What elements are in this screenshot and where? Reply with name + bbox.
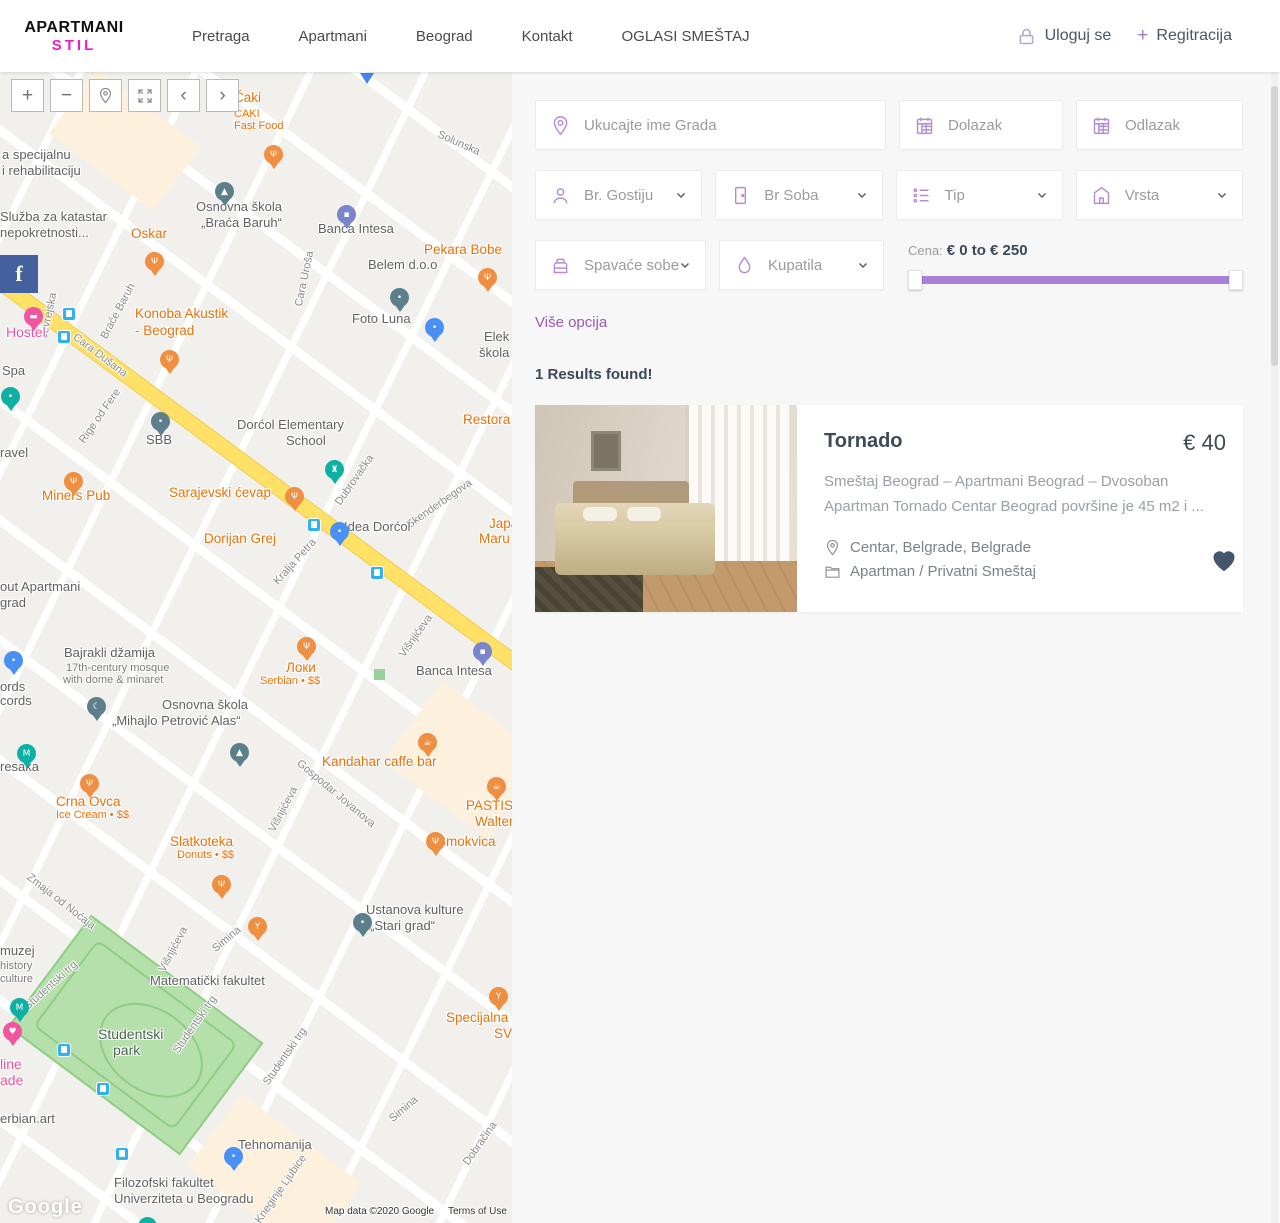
- type-select[interactable]: Tip: [896, 170, 1063, 220]
- site-logo[interactable]: APARTMANI STIL: [14, 19, 134, 54]
- pan-left-button[interactable]: ‹: [167, 79, 200, 112]
- map-label: Belem d.o.o: [368, 258, 437, 273]
- map-marker[interactable]: ♜: [325, 460, 344, 479]
- map-label: Oskar: [131, 226, 167, 242]
- photo-blanket: [555, 523, 715, 575]
- bus-stop-icon[interactable]: [115, 1147, 129, 1161]
- map-label: park: [113, 1042, 140, 1058]
- price-slider-handle-min[interactable]: [908, 270, 922, 290]
- map-label: Braće Baruh: [98, 281, 138, 341]
- map-label: Matematički fakultet: [150, 974, 265, 989]
- map-marker[interactable]: ▬: [24, 307, 43, 326]
- map-marker[interactable]: •: [4, 651, 23, 670]
- map-label: Restora: [463, 412, 510, 428]
- auth-links: Uloguj se + Regitracija: [1016, 25, 1232, 47]
- map-marker[interactable]: Ψ: [160, 350, 179, 369]
- chevron-down-icon: [675, 189, 687, 201]
- map-label: i rehabilitaciju: [2, 164, 81, 179]
- map-marker[interactable]: Ψ: [264, 145, 283, 164]
- map-label: Univerziteta u Beogradu: [114, 1192, 253, 1207]
- bus-stop-icon[interactable]: [370, 566, 384, 580]
- map-marker[interactable]: Ψ: [145, 252, 164, 271]
- pan-right-button[interactable]: ›: [206, 79, 239, 112]
- map-label: out Apartmani: [0, 580, 80, 595]
- map-label: a specijalnu: [2, 148, 71, 163]
- map-attribution: Map data ©2020 Google: [325, 1206, 434, 1218]
- map-label: Rige od Fere: [77, 387, 124, 446]
- scrollbar-thumb[interactable]: [1271, 86, 1278, 366]
- logo-line-1: APARTMANI: [14, 19, 134, 37]
- map-marker[interactable]: Ψ: [64, 472, 83, 491]
- map-label: „Stari grad“: [370, 919, 435, 934]
- map-label: Višnjićeva: [397, 612, 436, 660]
- map-marker[interactable]: •: [425, 318, 444, 337]
- map-label: Ice Cream • $$: [56, 809, 129, 822]
- map-label: Japa: [489, 516, 512, 532]
- checkout-placeholder: Odlazak: [1125, 117, 1180, 134]
- map-label: grad: [0, 596, 26, 611]
- map-label: Walter S: [475, 814, 512, 830]
- map-label: history: [0, 960, 32, 973]
- map-marker-triangle[interactable]: [360, 73, 374, 84]
- map-label: line: [0, 1056, 22, 1072]
- map-label: Dobračina: [461, 1120, 500, 1168]
- bathrooms-placeholder: Kupatila: [768, 257, 822, 274]
- map-label: Solunska: [435, 129, 481, 159]
- map-label: ravel: [0, 446, 28, 461]
- map-label: Pekara Bobe: [424, 242, 502, 258]
- photo-pillow: [627, 507, 661, 521]
- result-title[interactable]: Tornado: [824, 430, 903, 453]
- map-controls: + − ‹ ›: [11, 79, 239, 112]
- map-marker[interactable]: Ψ: [285, 487, 304, 506]
- location-pin-icon: [550, 115, 571, 136]
- price-label: Cena:: [908, 243, 943, 258]
- map-marker[interactable]: Ψ: [80, 774, 99, 793]
- map-label: Elek: [484, 330, 509, 345]
- map-label: culture: [0, 973, 33, 986]
- map-marker[interactable]: Ψ: [426, 832, 445, 851]
- map-green-area[interactable]: [374, 669, 385, 680]
- map-label: - Beograd: [135, 323, 194, 339]
- price-slider[interactable]: [908, 270, 1243, 290]
- map-label: 17th-century mosque: [66, 662, 169, 675]
- calendar-icon: [914, 115, 935, 136]
- photo-picture-frame: [591, 431, 621, 471]
- map-label: muzej: [0, 944, 35, 959]
- map-label: SV: [494, 1026, 512, 1042]
- price-value: € 0 to € 250: [947, 242, 1028, 259]
- map-label: Studentski: [98, 1026, 163, 1042]
- nav-pretraga[interactable]: Pretraga: [192, 28, 250, 45]
- guests-select[interactable]: Br. Gostiju: [535, 170, 702, 220]
- rooms-placeholder: Br Soba: [764, 187, 818, 204]
- map-label: PASTIS: [466, 798, 512, 814]
- map-label: Cara Dušana: [70, 331, 129, 380]
- building-icon: [1091, 185, 1112, 206]
- logo-line-2: STIL: [14, 37, 134, 54]
- search-panel: Ukucajte ime Grada Dolazak Odlazak Br. G…: [512, 72, 1280, 1223]
- price-filter: Cena:€ 0 to € 250: [908, 240, 1243, 290]
- map-label: Skenderbegova: [404, 477, 474, 532]
- map-label: Sarajevski ćevap: [169, 485, 271, 501]
- city-input[interactable]: Ukucajte ime Grada: [535, 100, 886, 150]
- map-marker[interactable]: •: [138, 1217, 157, 1223]
- register-link[interactable]: + Regitracija: [1137, 25, 1232, 47]
- rooms-select[interactable]: Br Soba: [715, 170, 882, 220]
- login-link[interactable]: Uloguj se: [1016, 26, 1112, 47]
- bus-stop-icon[interactable]: [57, 330, 71, 344]
- map-label: nepokretnosti...: [0, 226, 89, 241]
- folder-icon: [824, 563, 841, 580]
- main-nav: Pretraga Apartmani Beograd Kontakt OGLAS…: [192, 28, 799, 45]
- map-marker[interactable]: Ψ: [478, 268, 497, 287]
- fullscreen-button[interactable]: [128, 79, 161, 112]
- checkout-field[interactable]: Odlazak: [1076, 100, 1243, 150]
- chevron-down-icon: [679, 259, 691, 271]
- map-marker[interactable]: ♥: [3, 1022, 22, 1041]
- kind-select[interactable]: Vrsta: [1076, 170, 1243, 220]
- photo-pillow: [583, 507, 617, 521]
- map-marker[interactable]: ▪: [473, 642, 492, 661]
- map-label: Tehnomanija: [238, 1138, 312, 1153]
- map-label: Ustanova kulture: [366, 903, 464, 918]
- bus-stop-icon[interactable]: [57, 1043, 71, 1057]
- chevron-down-icon: [857, 259, 869, 271]
- map-marker[interactable]: •: [1, 387, 20, 406]
- map-label: resaka: [0, 760, 39, 775]
- result-card-body: Tornado € 40 Smeštaj Beograd – Apartmani…: [797, 405, 1254, 612]
- login-label: Uloguj se: [1045, 27, 1112, 45]
- map-label: with dome & minaret: [63, 674, 163, 687]
- bedrooms-placeholder: Spavaće sobe: [584, 257, 679, 274]
- map-label: Maru: [479, 531, 510, 547]
- map-marker[interactable]: ▲: [215, 182, 234, 201]
- map-label: Osnovna škola: [196, 200, 282, 215]
- map-marker[interactable]: ☕: [487, 777, 506, 796]
- map-label: Studentski trg: [261, 1026, 310, 1088]
- map-label: cords: [0, 694, 32, 709]
- price-slider-handle-max[interactable]: [1229, 270, 1243, 290]
- nav-apartmani[interactable]: Apartmani: [299, 28, 367, 45]
- list-icon: [911, 185, 932, 206]
- bus-stop-icon[interactable]: [62, 307, 76, 321]
- location-pin-icon: [97, 87, 114, 104]
- map-marker[interactable]: Ψ: [297, 637, 316, 656]
- map-marker[interactable]: Y: [248, 917, 267, 936]
- result-card[interactable]: Tornado € 40 Smeštaj Beograd – Apartmani…: [535, 405, 1243, 612]
- chevron-down-icon: [856, 189, 868, 201]
- map-label: Konoba Akustik: [135, 306, 228, 322]
- map-label: Donuts • $$: [177, 849, 234, 862]
- nav-beograd[interactable]: Beograd: [416, 28, 473, 45]
- map-label: Bajrakli džamija: [64, 646, 155, 661]
- water-drop-icon: [734, 255, 755, 276]
- map-marker[interactable]: ▲: [230, 743, 249, 762]
- map-label: Smokvica: [437, 834, 496, 850]
- nav-kontakt[interactable]: Kontakt: [522, 28, 573, 45]
- bus-stop-icon[interactable]: [307, 518, 321, 532]
- results-count: 1 Results found!: [535, 366, 1243, 383]
- bathrooms-select[interactable]: Kupatila: [719, 240, 884, 290]
- result-location: Centar, Belgrade, Belgrade: [850, 539, 1031, 556]
- calendar-icon: [1091, 115, 1112, 136]
- location-pin-icon: [824, 539, 841, 556]
- chevron-down-icon: [1216, 189, 1228, 201]
- map-label: Služba za katastar: [0, 210, 107, 225]
- chevron-down-icon: [1036, 189, 1048, 201]
- map-marker[interactable]: M: [10, 998, 29, 1017]
- map-marker[interactable]: ☕: [418, 733, 437, 752]
- type-placeholder: Tip: [945, 187, 965, 204]
- city-placeholder: Ukucajte ime Grada: [584, 117, 717, 134]
- bed-icon: [550, 255, 571, 276]
- top-navbar: APARTMANI STIL Pretraga Apartmani Beogra…: [0, 0, 1280, 72]
- result-location-row: Centar, Belgrade, Belgrade: [824, 539, 1226, 556]
- favorite-heart-button[interactable]: [1209, 545, 1239, 575]
- bedrooms-select[interactable]: Spavaće sobe: [535, 240, 706, 290]
- map-label: Dorćol Elementary: [237, 418, 344, 433]
- person-icon: [550, 185, 571, 206]
- map-label: „Braća Baruh“: [201, 216, 282, 231]
- zoom-in-button[interactable]: +: [11, 79, 44, 112]
- plus-icon: +: [1137, 25, 1148, 47]
- result-description: Smeštaj Beograd – Apartmani Beograd – Dv…: [824, 469, 1226, 519]
- map-label: Dorijan Grej: [204, 531, 276, 547]
- guests-placeholder: Br. Gostiju: [584, 187, 653, 204]
- result-category: Apartman / Privatni Smeštaj: [850, 563, 1036, 580]
- map-label: škola: [479, 346, 509, 361]
- map-label: Osnovna škola: [162, 698, 248, 713]
- map-marker[interactable]: •: [353, 913, 372, 932]
- map-label: „Mihajlo Petrović Alas“: [112, 714, 241, 729]
- map-label: Idea Dorćol: [344, 520, 410, 535]
- map-label: Slatkoteka: [170, 834, 233, 850]
- kind-placeholder: Vrsta: [1125, 187, 1159, 204]
- my-location-button[interactable]: [89, 79, 122, 112]
- google-watermark: Google: [8, 1196, 83, 1219]
- map-label: Višnjićeva: [156, 925, 190, 974]
- nav-oglasi-smestaj[interactable]: OGLASI SMEŠTAJ: [622, 28, 750, 45]
- map-label: erbian.art: [0, 1112, 55, 1127]
- expand-icon: [137, 88, 153, 104]
- facebook-share-button[interactable]: f: [0, 255, 38, 293]
- map-label: Filozofski fakultet: [114, 1176, 214, 1191]
- map-marker[interactable]: ☾: [87, 697, 106, 716]
- price-slider-track: [922, 276, 1229, 284]
- map-label: Hostel: [6, 324, 46, 340]
- zoom-out-button[interactable]: −: [50, 79, 83, 112]
- map-label: Kandahar caffe bar: [322, 754, 437, 770]
- result-photo[interactable]: [535, 405, 797, 612]
- map-label: Spa: [2, 364, 25, 379]
- result-category-row: Apartman / Privatni Smeštaj: [824, 563, 1226, 580]
- map-marker[interactable]: Ψ: [212, 875, 231, 894]
- bus-stop-icon[interactable]: [96, 1082, 110, 1096]
- checkin-placeholder: Dolazak: [948, 117, 1002, 134]
- door-icon: [730, 185, 751, 206]
- map-marker[interactable]: Y: [489, 987, 508, 1006]
- map-marker[interactable]: •: [224, 1147, 243, 1166]
- map-label: Serbian • $$: [260, 675, 320, 688]
- map-label: Banca Intesa: [318, 222, 394, 237]
- map-label: Simina: [387, 1094, 421, 1125]
- register-label: Regitracija: [1156, 27, 1232, 45]
- map-label: Fast Food: [234, 120, 284, 133]
- checkin-field[interactable]: Dolazak: [899, 100, 1063, 150]
- map[interactable]: a specijalnui rehabilitacijuSlužba za ka…: [0, 70, 512, 1223]
- map-marker[interactable]: •: [151, 412, 170, 431]
- terms-of-use-link[interactable]: Terms of Use: [448, 1206, 507, 1218]
- map-marker[interactable]: •: [330, 522, 349, 541]
- result-price: € 40: [1183, 430, 1226, 456]
- lock-icon: [1016, 26, 1037, 47]
- more-options-link[interactable]: Više opcija: [535, 314, 607, 331]
- map-marker[interactable]: ▪: [337, 205, 356, 224]
- map-label: School: [286, 434, 326, 449]
- map-marker[interactable]: •: [390, 288, 409, 307]
- map-label: ade: [0, 1072, 23, 1088]
- map-marker[interactable]: M: [17, 744, 36, 763]
